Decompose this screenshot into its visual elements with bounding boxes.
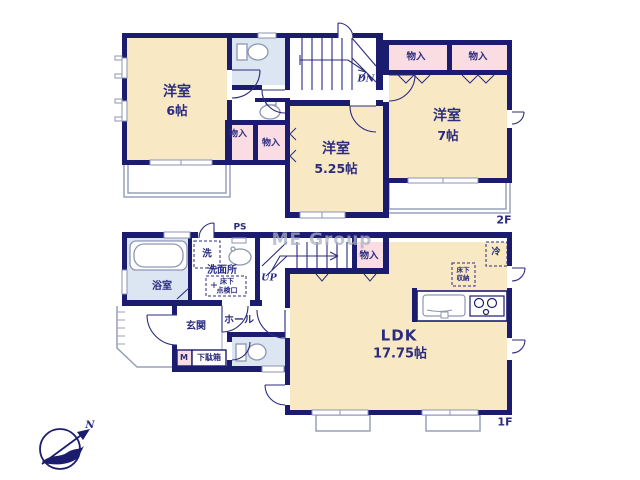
underfloor-inspection-line2: 点検口 xyxy=(217,288,238,295)
stairs-up-label: UP xyxy=(261,273,276,283)
room-2f-east-name: 洋室 xyxy=(433,109,461,123)
room-2f-east-fill xyxy=(388,75,507,178)
window-bathroom-west xyxy=(122,270,127,294)
room-2f-west-name: 洋室 xyxy=(163,85,191,99)
balcony-east-inner xyxy=(389,183,506,209)
watermark: ME Group xyxy=(272,230,373,250)
closet-2f-b-label: 物入 xyxy=(262,140,280,149)
laundry-label: 洗 xyxy=(202,249,212,259)
closet-2f-d-label: 物入 xyxy=(468,52,487,62)
window-flap-ldk-b xyxy=(512,340,525,353)
porch-hatch xyxy=(117,312,125,344)
window-2f-west-a xyxy=(122,58,127,78)
refrigerator-label: 冷 xyxy=(491,249,500,258)
closet-2f-c-label: 物入 xyxy=(406,52,425,62)
stairs-down-label: DN xyxy=(358,74,375,84)
bathroom-label: 浴室 xyxy=(152,282,172,292)
entrance-label: 玄関 xyxy=(186,322,206,332)
window-toilet-1f xyxy=(262,366,284,372)
window-flap-7j xyxy=(512,112,524,124)
floor-1f-label: 1F xyxy=(497,417,512,428)
room-2f-center-size: 5.25帖 xyxy=(314,163,357,176)
room-2f-center-name: 洋室 xyxy=(322,142,350,156)
washbasin-icon-1f xyxy=(229,247,251,265)
hall-label: ホール xyxy=(224,316,254,326)
door-ldk-back xyxy=(265,385,285,405)
ldk-size: 17.75帖 xyxy=(373,348,427,361)
closet-2f-a-label: 物入 xyxy=(229,131,247,140)
compass-icon xyxy=(40,429,90,469)
window-toilet-2f xyxy=(258,33,276,38)
floor-2f-label: 2F xyxy=(496,215,511,226)
ldk-name: LDK xyxy=(381,329,418,344)
terrace-step-east xyxy=(426,415,480,431)
window-flap-ldk-a xyxy=(512,268,525,281)
room-2f-west-size: 6帖 xyxy=(166,105,187,118)
shoebox-label: 下駄箱 xyxy=(197,354,221,362)
kitchen-tap-icon xyxy=(441,312,448,318)
washroom-label: 洗面所 xyxy=(207,266,237,276)
balcony-west-inner xyxy=(128,165,226,193)
pipe-space-label: PS xyxy=(233,224,246,233)
underfloor-inspection-line1: 床下 xyxy=(220,279,234,286)
balcony-west xyxy=(124,165,230,197)
shoebox-m-label: M xyxy=(180,354,188,362)
room-2f-east-size: 7帖 xyxy=(437,130,458,143)
bathtub-icon-inner xyxy=(134,244,183,267)
window-2f-west-b xyxy=(122,101,127,121)
underfloor-storage-line2: 収納 xyxy=(457,275,470,282)
room-2f-center-fill xyxy=(290,106,383,212)
washbasin-icon-2f xyxy=(260,100,280,119)
toilet-icon-2f xyxy=(237,44,268,60)
kitchen-counter xyxy=(417,291,507,321)
pipe-space-box xyxy=(232,238,246,243)
floor-plan: ME Group 洋室 6帖 物入 物入 洋室 5.25帖 物入 物入 洋室 7… xyxy=(0,0,640,480)
underfloor-storage-line1: 床下 xyxy=(457,267,470,274)
window-bathroom-north xyxy=(164,232,190,238)
closet-1f-label: 物入 xyxy=(359,251,378,261)
compass-north-label: N xyxy=(85,421,94,431)
terrace-step-west xyxy=(316,415,370,431)
